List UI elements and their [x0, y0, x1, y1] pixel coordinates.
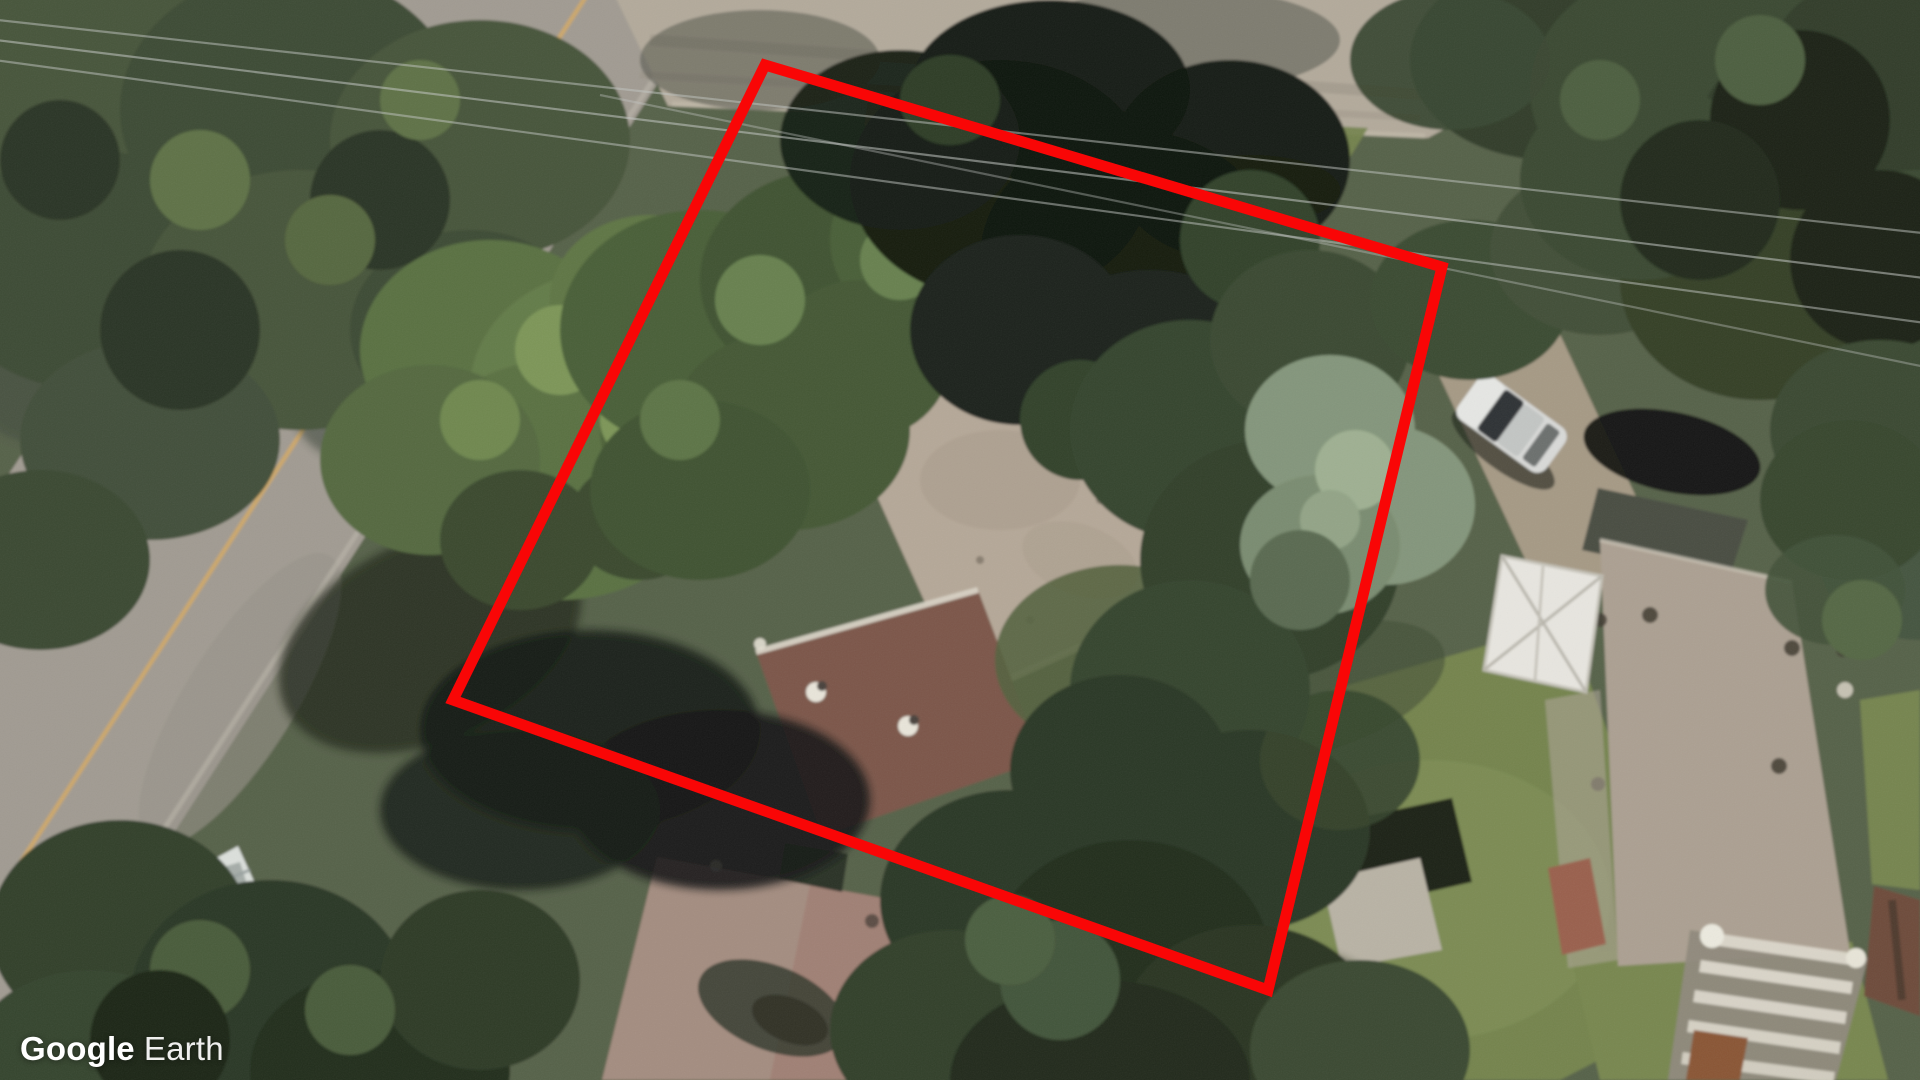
google-earth-viewport[interactable]: GoogleEarth — [0, 0, 1920, 1080]
google-earth-watermark: GoogleEarth — [20, 1030, 224, 1068]
aerial-imagery-canvas[interactable] — [0, 0, 1920, 1080]
watermark-brand: Google — [20, 1030, 135, 1067]
photo-grain-overlay — [0, 0, 1920, 1080]
watermark-product: Earth — [144, 1030, 224, 1067]
